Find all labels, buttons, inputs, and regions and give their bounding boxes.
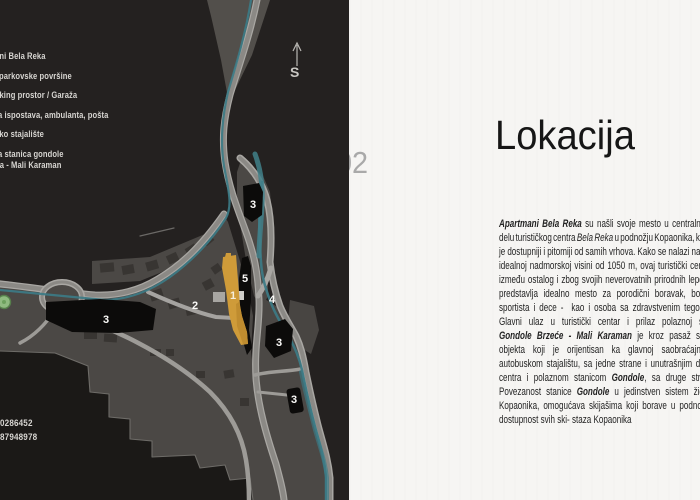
svg-text:3: 3 bbox=[103, 314, 109, 326]
svg-text:3: 3 bbox=[276, 337, 282, 349]
svg-text:4: 4 bbox=[269, 294, 276, 306]
svg-text:5: 5 bbox=[242, 273, 248, 285]
svg-text:3: 3 bbox=[291, 394, 297, 406]
svg-text:3: 3 bbox=[250, 199, 256, 211]
svg-text:2: 2 bbox=[192, 300, 198, 312]
svg-text:1: 1 bbox=[230, 290, 236, 302]
